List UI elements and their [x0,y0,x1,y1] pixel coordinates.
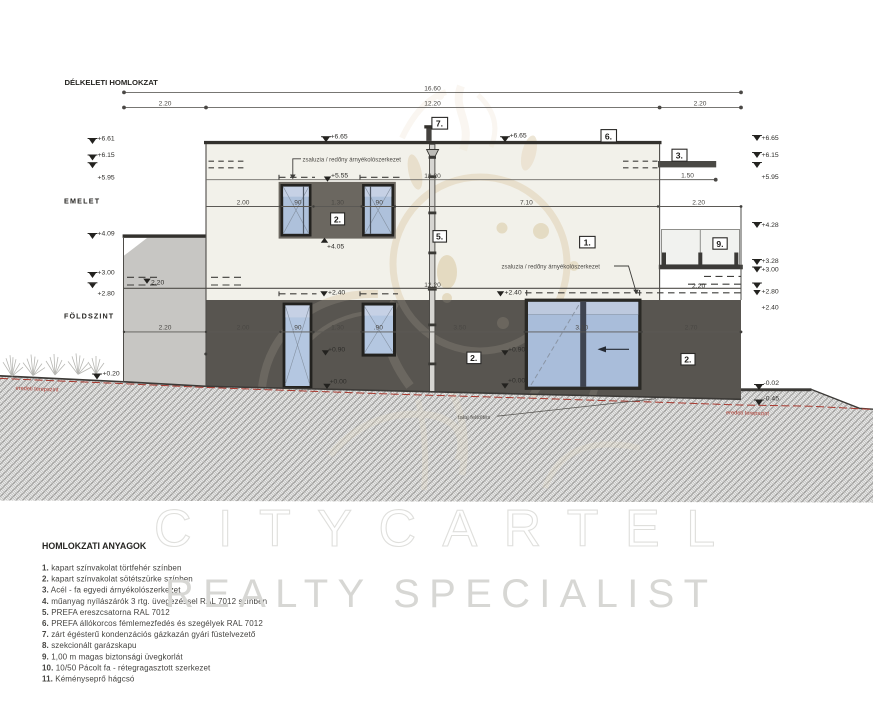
svg-text:FÖLDSZINT: FÖLDSZINT [64,312,114,321]
svg-text:12.20: 12.20 [424,173,441,180]
svg-text:+0.00: +0.00 [330,379,347,386]
svg-text:1.30: 1.30 [331,199,344,206]
svg-text:9. 1,00 m magas biztonsági üve: 9. 1,00 m magas biztonsági üvegkorlát [42,652,183,661]
svg-text:+5.95: +5.95 [762,174,779,181]
svg-text:+6.65: +6.65 [331,134,348,141]
svg-text:+4.09: +4.09 [98,231,115,238]
svg-text:-0.45: -0.45 [764,396,780,403]
svg-text:+5.95: +5.95 [98,175,115,182]
svg-text:+6.65: +6.65 [762,135,779,142]
svg-text:1.50: 1.50 [681,173,694,180]
svg-text:8. szekcionált garázskapu: 8. szekcionált garázskapu [42,641,137,650]
svg-text:zsaluzia / redőny árnyékolósze: zsaluzia / redőny árnyékolószerkezet [303,157,402,163]
svg-text:.90: .90 [374,199,383,206]
svg-text:2.20: 2.20 [692,283,705,290]
svg-text:+0.20: +0.20 [103,371,120,378]
svg-text:CITYCARTEL: CITYCARTEL [154,500,742,558]
svg-text:2.: 2. [684,355,691,365]
svg-text:2.20: 2.20 [694,101,707,108]
svg-text:+3.00: +3.00 [98,270,115,277]
svg-text:2.00: 2.00 [237,199,250,206]
svg-text:6. PREFA állókorcos fémlemezfe: 6. PREFA állókorcos fémlemezfedés és sze… [42,619,263,628]
svg-text:11. Kéményseprő hágcsó: 11. Kéményseprő hágcsó [42,675,135,684]
svg-text:+2.40: +2.40 [328,290,345,297]
svg-text:.90: .90 [374,325,383,332]
svg-text:REALTY SPECIALIST: REALTY SPECIALIST [165,572,717,616]
svg-text:5.: 5. [436,232,443,242]
svg-text:DÉLKELETI HOMLOKZAT: DÉLKELETI HOMLOKZAT [65,78,159,87]
svg-text:+2.80: +2.80 [762,289,779,296]
svg-text:+3.28: +3.28 [762,258,779,265]
svg-text:+6.15: +6.15 [98,152,115,159]
svg-text:7. zárt égésterű kondenzációs: 7. zárt égésterű kondenzációs gázkazán g… [42,630,256,639]
svg-text:eredeti terepszint: eredeti terepszint [726,410,769,417]
svg-text:5. PREFA ereszcsatorna RAL 70: 5. PREFA ereszcsatorna RAL 7012 [42,608,170,617]
svg-text:6.: 6. [605,131,612,141]
svg-text:1.30: 1.30 [331,325,344,332]
svg-text:+2.80: +2.80 [98,291,115,298]
svg-text:+3.00: +3.00 [762,267,779,274]
svg-text:+5.55: +5.55 [331,173,348,180]
svg-text:EMELET: EMELET [64,197,100,206]
svg-text:2.70: 2.70 [685,325,698,332]
svg-text:12.20: 12.20 [424,282,441,289]
svg-text:+0.90: +0.90 [508,347,525,354]
svg-text:1. kapart színvakolat törtfehé: 1. kapart színvakolat törtfehér színben [42,564,182,573]
svg-text:+6.61: +6.61 [98,136,115,143]
svg-text:12.20: 12.20 [424,101,441,108]
svg-text:+2.40: +2.40 [762,305,779,312]
svg-text:16.60: 16.60 [424,86,441,93]
svg-text:3.50: 3.50 [453,325,466,332]
svg-text:2.00: 2.00 [237,325,250,332]
svg-text:talaj feltöltés: talaj feltöltés [458,415,490,421]
svg-text:2.20: 2.20 [159,325,172,332]
svg-text:+0.90: +0.90 [328,347,345,354]
svg-text:3.: 3. [676,151,683,161]
svg-text:-0.02: -0.02 [764,380,780,387]
svg-text:2.20: 2.20 [159,101,172,108]
svg-text:.90: .90 [292,325,301,332]
svg-text:zsaluzia / redőny árnyékolósze: zsaluzia / redőny árnyékolószerkezet [502,265,601,271]
svg-text:10. 10/50 Pácolt fa - rétegrag: 10. 10/50 Pácolt fa - rétegragasztott sz… [42,663,211,672]
svg-text:2.: 2. [334,214,341,224]
svg-text:9.: 9. [716,239,723,249]
svg-text:HOMLOKZATI ANYAGOK: HOMLOKZATI ANYAGOK [42,541,147,551]
svg-text:3.10: 3.10 [575,325,588,332]
svg-text:1.: 1. [584,238,591,248]
svg-text:+0.00: +0.00 [508,378,525,385]
svg-text:+2.40: +2.40 [505,290,522,297]
svg-text:2.20: 2.20 [151,280,164,287]
svg-text:7.10: 7.10 [520,199,533,206]
svg-text:+4.28: +4.28 [762,222,779,229]
svg-text:2.: 2. [470,353,477,363]
svg-text:7.: 7. [436,119,443,129]
svg-text:3. Acél - fa egyedi árnyékolós: 3. Acél - fa egyedi árnyékolószerkezet [42,586,181,595]
svg-text:.90: .90 [292,199,301,206]
svg-text:+6.15: +6.15 [762,152,779,159]
svg-text:+4.05: +4.05 [327,244,344,251]
svg-text:+6.65: +6.65 [510,133,527,140]
svg-text:2.20: 2.20 [692,199,705,206]
